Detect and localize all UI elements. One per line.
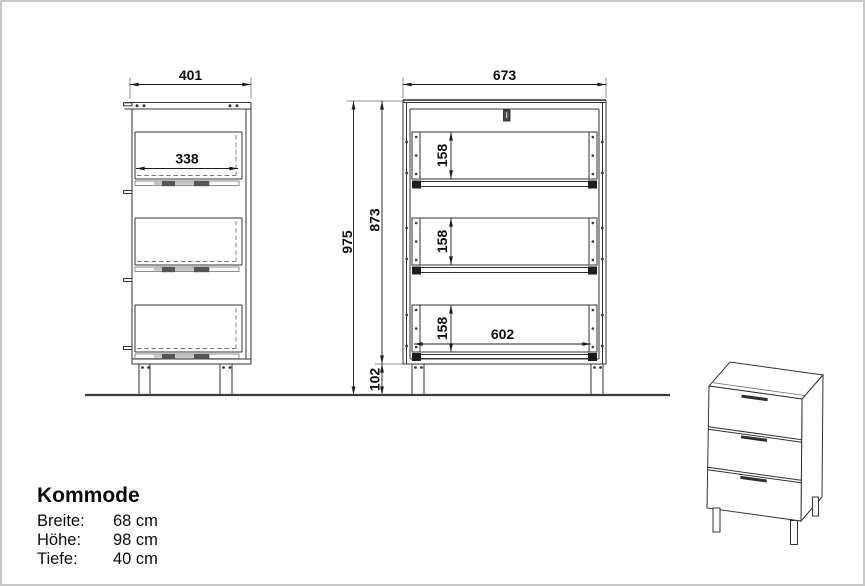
total-height-label: 975 bbox=[339, 230, 355, 254]
leg-height-label: 102 bbox=[367, 368, 383, 392]
spec-label-tiefe: Tiefe: bbox=[37, 550, 113, 569]
drawer2-height-label: 158 bbox=[434, 230, 450, 254]
furniture-dimension-drawing: 401 bbox=[0, 0, 865, 586]
front-drawer-3: 158 602 bbox=[412, 305, 597, 361]
front-view-drawing: 673 975 873 102 bbox=[339, 67, 606, 395]
spec-value-breite: 68 cm bbox=[113, 512, 158, 531]
drawer1-height-label: 158 bbox=[434, 144, 450, 168]
drawer3-height-label: 158 bbox=[434, 317, 450, 341]
product-info: Kommode Breite: 68 cm Höhe: 98 cm Tiefe:… bbox=[37, 484, 158, 569]
side-drawer-2 bbox=[135, 218, 242, 272]
iso-thumbnail bbox=[707, 362, 823, 545]
side-depth-label: 401 bbox=[179, 67, 203, 83]
spec-value-tiefe: 40 cm bbox=[113, 550, 158, 569]
dimension-leg-height-102: 102 bbox=[367, 364, 383, 395]
cam-fitting bbox=[504, 110, 511, 121]
front-drawer-2: 158 bbox=[412, 218, 597, 275]
spec-row-width: Breite: 68 cm bbox=[37, 512, 158, 531]
front-width-label: 673 bbox=[493, 67, 517, 83]
dimension-depth-401: 401 bbox=[130, 67, 251, 99]
side-view-drawing: 401 bbox=[124, 67, 252, 395]
front-drawer-1: 158 bbox=[412, 132, 597, 189]
drawer-depth-label: 338 bbox=[175, 151, 199, 167]
drawer-inner-width-label: 602 bbox=[491, 326, 515, 342]
spec-row-depth: Tiefe: 40 cm bbox=[37, 550, 158, 569]
side-drawer-3 bbox=[135, 305, 242, 359]
body-height-label: 873 bbox=[367, 208, 383, 232]
dimension-width-673: 673 bbox=[403, 67, 606, 98]
product-title: Kommode bbox=[37, 484, 158, 508]
spec-row-height: Höhe: 98 cm bbox=[37, 531, 158, 550]
spec-label-hoehe: Höhe: bbox=[37, 531, 113, 550]
spec-label-breite: Breite: bbox=[37, 512, 113, 531]
spec-value-hoehe: 98 cm bbox=[113, 531, 158, 550]
dimension-drawer-depth-338: 338 bbox=[136, 151, 238, 169]
dimension-total-height-975: 975 bbox=[339, 101, 405, 395]
dimension-body-height-873: 873 bbox=[367, 101, 407, 364]
